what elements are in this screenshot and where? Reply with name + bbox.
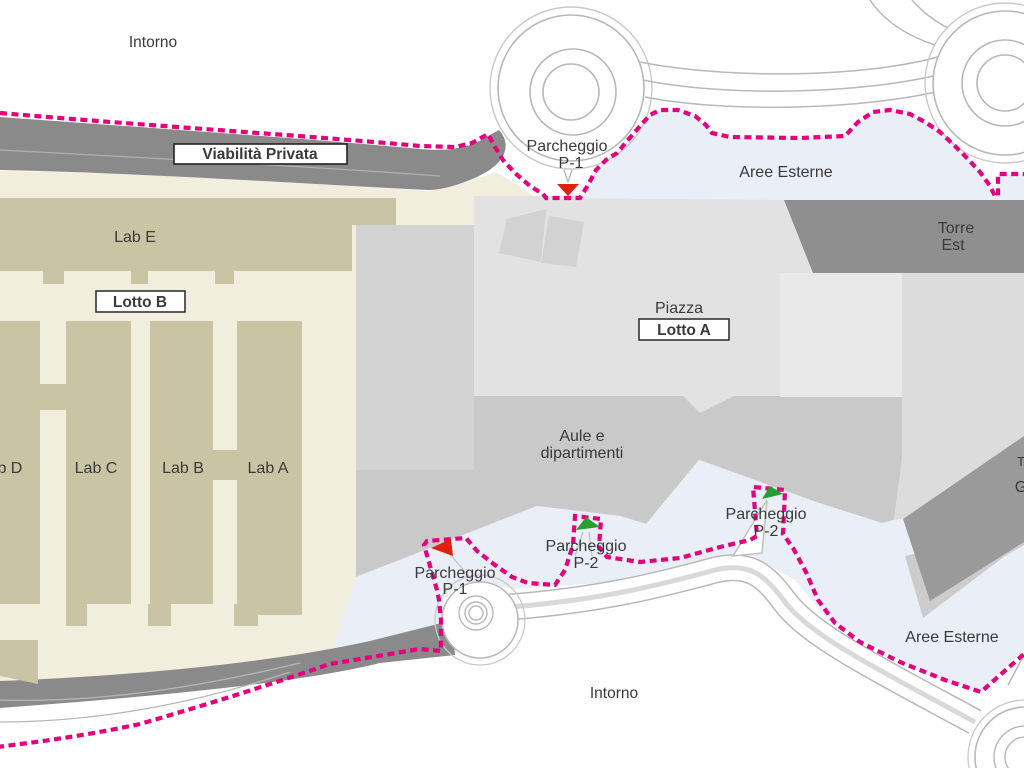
svg-text:T: T — [1017, 454, 1024, 469]
svg-text:Parcheggio: Parcheggio — [415, 565, 496, 582]
svg-text:P-1: P-1 — [559, 155, 584, 172]
svg-text:Lab C: Lab C — [75, 460, 118, 477]
svg-text:Piazza: Piazza — [655, 300, 703, 317]
svg-text:Parcheggio: Parcheggio — [546, 538, 627, 555]
svg-text:P-1: P-1 — [443, 581, 468, 598]
svg-text:Intorno: Intorno — [590, 685, 638, 702]
svg-text:Parcheggio: Parcheggio — [527, 138, 608, 155]
svg-text:Viabilità Privata: Viabilità Privata — [202, 146, 318, 163]
svg-text:Torre: Torre — [938, 220, 975, 237]
svg-text:Lotto A: Lotto A — [657, 322, 711, 339]
svg-text:Lab D: Lab D — [0, 460, 22, 477]
svg-text:Lotto B: Lotto B — [113, 294, 167, 311]
svg-text:dipartimenti: dipartimenti — [541, 445, 624, 462]
svg-text:Aule e: Aule e — [559, 428, 604, 445]
svg-text:Lab A: Lab A — [248, 460, 289, 477]
svg-text:Est: Est — [941, 237, 965, 254]
svg-text:Parcheggio: Parcheggio — [726, 506, 807, 523]
svg-text:Aree Esterne: Aree Esterne — [905, 629, 998, 646]
svg-text:Aree Esterne: Aree Esterne — [739, 164, 832, 181]
svg-text:G: G — [1015, 479, 1024, 496]
svg-text:Intorno: Intorno — [129, 34, 177, 51]
svg-text:P-2: P-2 — [574, 555, 599, 572]
svg-text:Lab E: Lab E — [114, 229, 156, 246]
svg-text:P-2: P-2 — [754, 523, 779, 540]
svg-text:Lab B: Lab B — [162, 460, 204, 477]
